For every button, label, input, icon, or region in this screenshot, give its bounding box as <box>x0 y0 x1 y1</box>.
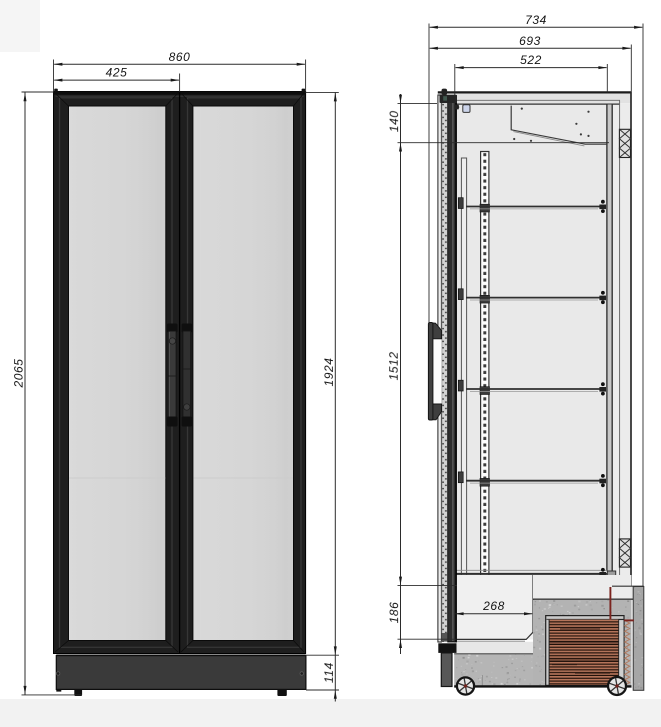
svg-text:1512: 1512 <box>387 351 401 380</box>
svg-text:425: 425 <box>106 66 128 80</box>
svg-text:522: 522 <box>520 53 542 67</box>
svg-text:2065: 2065 <box>12 358 26 388</box>
svg-text:860: 860 <box>169 50 191 64</box>
svg-text:734: 734 <box>525 13 547 27</box>
svg-text:693: 693 <box>519 34 541 48</box>
svg-text:268: 268 <box>482 599 505 613</box>
svg-text:140: 140 <box>387 110 401 132</box>
svg-text:114: 114 <box>322 662 336 683</box>
svg-text:1924: 1924 <box>322 357 336 386</box>
svg-text:186: 186 <box>387 602 401 624</box>
